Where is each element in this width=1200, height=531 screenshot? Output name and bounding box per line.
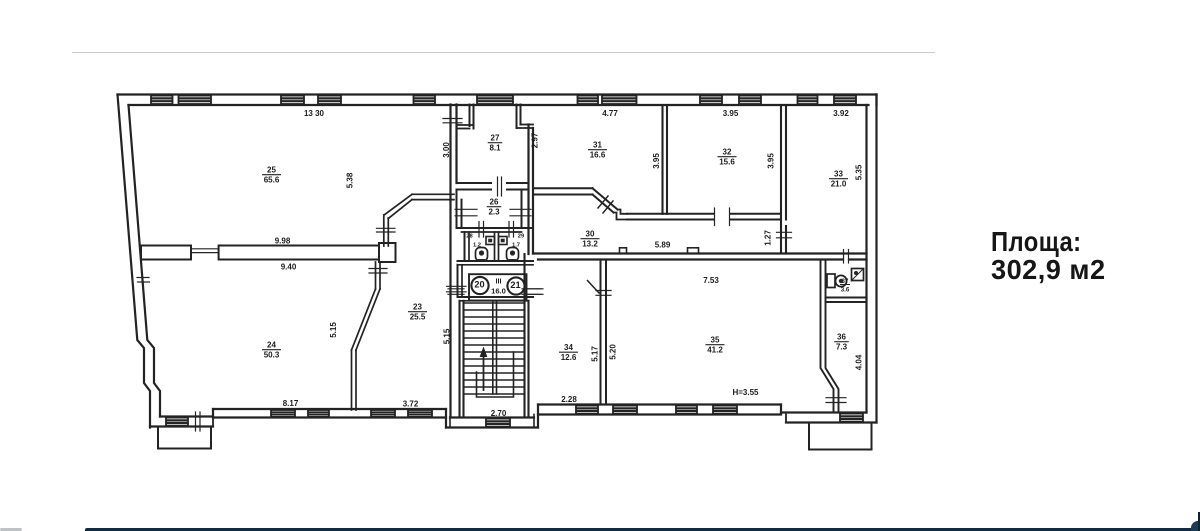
svg-text:12.6: 12.6 [561,353,577,362]
svg-text:7.3: 7.3 [836,343,848,352]
svg-text:23: 23 [413,303,422,312]
svg-text:5.15: 5.15 [443,328,452,344]
svg-text:33: 33 [834,170,843,179]
svg-text:25.5: 25.5 [410,313,426,322]
svg-text:8.17: 8.17 [283,399,299,408]
svg-text:65.6: 65.6 [264,176,280,185]
svg-text:20: 20 [474,280,484,290]
svg-text:1.7: 1.7 [512,243,520,249]
svg-text:7.53: 7.53 [703,276,719,285]
svg-text:5.17: 5.17 [591,346,600,362]
svg-text:3.00: 3.00 [442,142,451,158]
svg-text:5.20: 5.20 [609,344,618,360]
svg-text:31: 31 [593,141,602,150]
svg-text:36: 36 [837,333,846,342]
svg-text:41.2: 41.2 [707,346,723,355]
svg-text:5.89: 5.89 [655,241,671,250]
svg-text:5.38: 5.38 [346,172,355,188]
svg-text:21: 21 [510,280,520,290]
svg-text:2.97: 2.97 [531,132,540,148]
svg-text:8.1: 8.1 [489,144,501,153]
svg-text:50.3: 50.3 [264,351,280,360]
svg-text:5.15: 5.15 [329,322,338,338]
svg-text:3.95: 3.95 [723,109,739,118]
svg-text:29: 29 [518,234,525,240]
svg-text:24: 24 [267,341,276,350]
svg-text:5.35: 5.35 [855,164,864,180]
svg-text:32: 32 [723,148,732,157]
svg-text:35: 35 [711,336,720,345]
svg-text:3.72: 3.72 [403,400,419,409]
svg-text:4.77: 4.77 [602,109,618,118]
svg-text:21.0: 21.0 [831,180,847,189]
svg-text:16.0: 16.0 [491,287,506,296]
svg-text:1.27: 1.27 [764,230,773,246]
svg-text:27: 27 [491,134,500,143]
svg-text:2.28: 2.28 [561,395,577,404]
svg-text:2.70: 2.70 [491,409,507,418]
svg-text:13.2: 13.2 [582,240,598,249]
svg-text:26: 26 [490,198,499,207]
svg-text:3.95: 3.95 [767,153,776,169]
svg-text:9.40: 9.40 [281,263,297,272]
svg-text:H=3.55: H=3.55 [732,388,759,397]
svg-text:3.92: 3.92 [833,109,849,118]
svg-text:37: 37 [842,278,849,285]
svg-text:34: 34 [564,343,573,352]
svg-text:III: III [496,277,502,286]
svg-text:28: 28 [466,234,473,240]
svg-text:15.6: 15.6 [719,158,735,167]
svg-text:25: 25 [267,166,276,175]
svg-text:1.2: 1.2 [473,243,481,249]
svg-text:13 30: 13 30 [304,109,325,118]
svg-text:30: 30 [586,230,595,239]
svg-text:4.04: 4.04 [855,354,864,370]
svg-text:16.6: 16.6 [590,151,606,160]
svg-text:9.98: 9.98 [275,237,291,246]
svg-text:3.95: 3.95 [652,153,661,169]
svg-text:2.3: 2.3 [488,208,500,217]
svg-text:3.6: 3.6 [841,287,850,294]
